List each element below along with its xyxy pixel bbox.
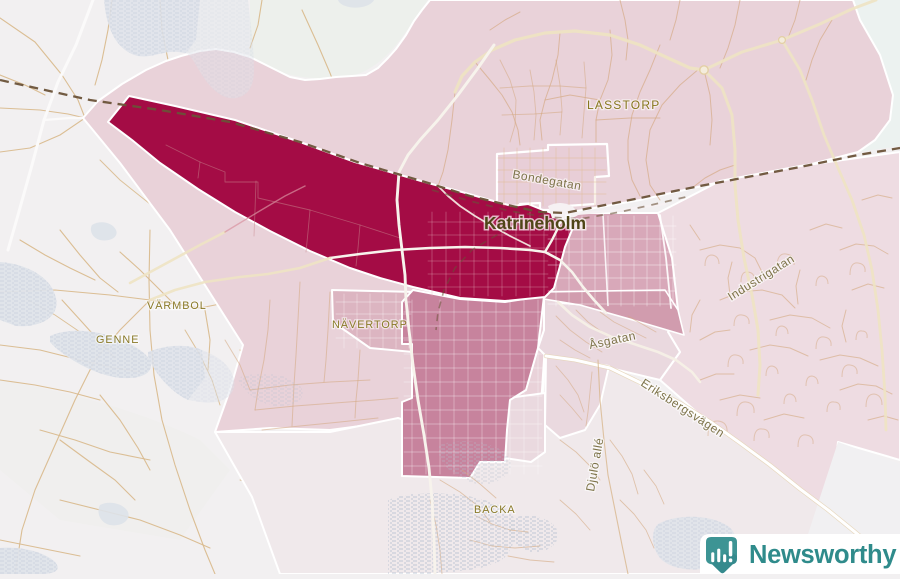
svg-text:BACKA: BACKA [474, 504, 516, 516]
svg-text:Katrineholm: Katrineholm [484, 213, 586, 233]
svg-text:GENNE: GENNE [96, 334, 139, 346]
svg-text:Newsworthy: Newsworthy [749, 541, 897, 569]
svg-text:VÄRMBOL: VÄRMBOL [147, 300, 207, 312]
svg-text:NÄVERTORP: NÄVERTORP [332, 319, 408, 331]
svg-text:LASSTORP: LASSTORP [587, 98, 660, 112]
